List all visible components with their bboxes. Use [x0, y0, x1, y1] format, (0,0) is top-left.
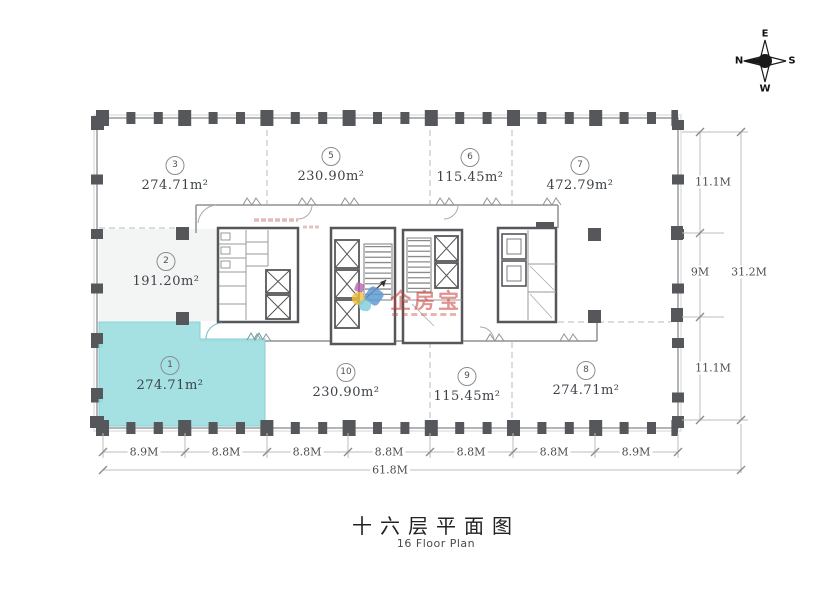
unit-area: 274.71m² [136, 378, 203, 393]
unit-label-5: 5 230.90m² [297, 143, 364, 184]
unit-label-7: 7 472.79m² [546, 152, 613, 193]
unit-number-badge: 10 [337, 363, 356, 382]
unit-area: 191.20m² [132, 274, 199, 289]
compass-label-n: N [735, 56, 743, 67]
unit-number-badge: 5 [322, 147, 341, 166]
unit-area: 230.90m² [312, 385, 379, 400]
compass-label-s: S [788, 56, 795, 67]
unit-label-10: 10 230.90m² [312, 359, 379, 400]
dim-right-1: 11.1M [693, 176, 733, 189]
dim-bottom-6: 8.8M [538, 446, 571, 459]
compass-label-w: W [759, 84, 770, 95]
unit-area: 274.71m² [552, 383, 619, 398]
unit-number-badge: 6 [461, 148, 480, 167]
unit-area: 115.45m² [436, 170, 503, 185]
dim-right-3: 11.1M [693, 362, 733, 375]
unit-number-badge: 3 [166, 156, 185, 175]
unit-number-badge: 7 [571, 156, 590, 175]
dim-bottom-7: 8.9M [620, 446, 653, 459]
unit-number-badge: 8 [577, 361, 596, 380]
dim-right-total: 31.2M [729, 266, 769, 279]
unit-number-badge: 1 [161, 356, 180, 375]
unit-area: 230.90m² [297, 169, 364, 184]
dim-bottom-total: 61.8M [370, 464, 410, 477]
unit-area: 274.71m² [141, 178, 208, 193]
unit-label-6: 6 115.45m² [436, 144, 503, 185]
page-title: 十六层平面图 [352, 510, 520, 539]
unit-number-badge: 9 [458, 367, 477, 386]
dim-bottom-2: 8.8M [210, 446, 243, 459]
dim-bottom-4: 8.8M [373, 446, 406, 459]
dim-bottom-3: 8.8M [291, 446, 324, 459]
watermark-text: 企房宝 [390, 285, 462, 315]
dim-bottom-5: 8.8M [455, 446, 488, 459]
elevator-shafts-a [266, 270, 290, 319]
watermark-tagline [392, 313, 456, 316]
unit-label-1: 1 274.71m² [136, 352, 203, 393]
unit-label-8: 8 274.71m² [552, 357, 619, 398]
compass-rose [742, 40, 786, 82]
page-subtitle: 16 Floor Plan [397, 537, 475, 550]
floor-plan-page: E S W N 3 274.71m² 5 230.90m² 6 115.45m²… [0, 0, 814, 600]
service-core [218, 220, 556, 344]
compass-label-e: E [762, 29, 769, 40]
unit-label-2: 2 191.20m² [132, 248, 199, 289]
unit-label-9: 9 115.45m² [433, 363, 500, 404]
dim-bottom-1: 8.9M [128, 446, 161, 459]
unit-area: 115.45m² [433, 389, 500, 404]
dim-right-2: 9M [689, 266, 711, 279]
unit-number-badge: 2 [157, 252, 176, 271]
unit-area: 472.79m² [546, 178, 613, 193]
unit-label-3: 3 274.71m² [141, 152, 208, 193]
